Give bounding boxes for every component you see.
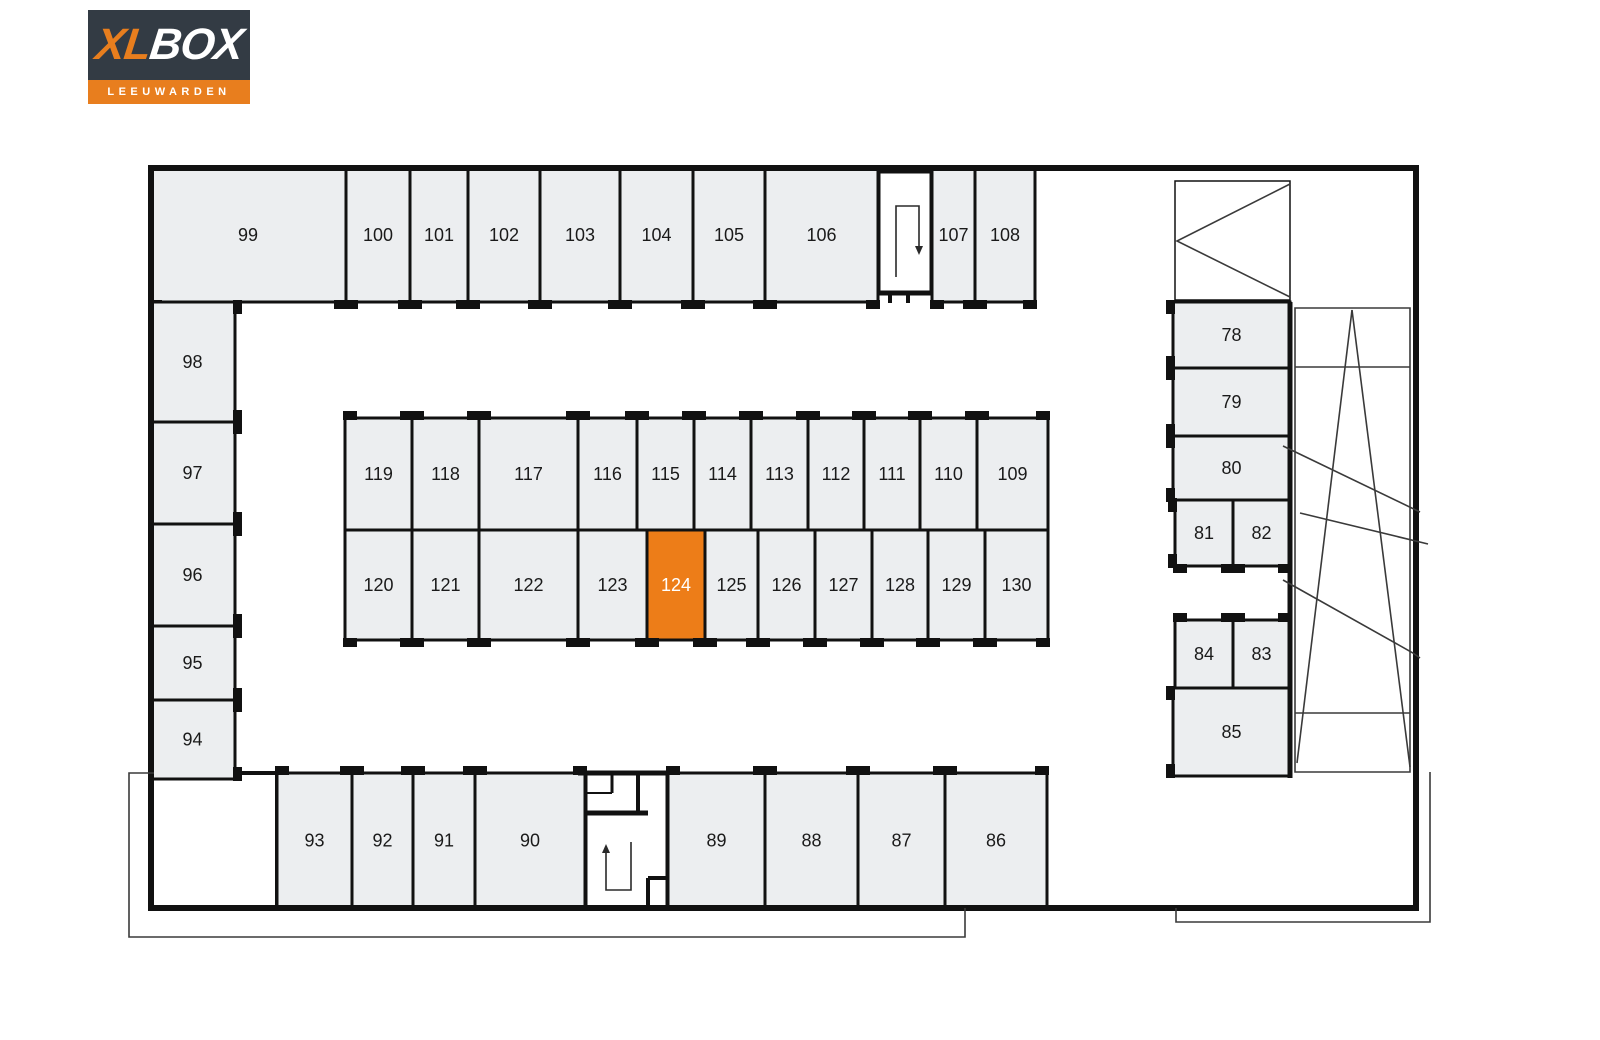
unit-label: 80: [1221, 458, 1241, 478]
unit-127[interactable]: 127: [813, 530, 874, 647]
unit-87[interactable]: 87: [856, 766, 947, 908]
door-tick: [666, 766, 680, 775]
unit-label: 94: [182, 730, 202, 750]
unit-label: 125: [716, 575, 746, 595]
logo-box-text: BOX: [147, 23, 245, 67]
unit-label: 103: [565, 225, 595, 245]
unit-122[interactable]: 122: [477, 530, 580, 647]
door-tick: [233, 767, 242, 781]
unit-105[interactable]: 105: [691, 168, 767, 309]
door-tick: [466, 300, 480, 309]
unit-label: 79: [1221, 392, 1241, 412]
unit-81[interactable]: 81: [1168, 498, 1235, 573]
unit-label: 121: [430, 575, 460, 595]
door-tick: [233, 522, 242, 536]
unit-label: 108: [990, 225, 1020, 245]
unit-label: 102: [489, 225, 519, 245]
door-tick: [973, 300, 987, 309]
unit-80[interactable]: 80: [1166, 434, 1290, 502]
unit-label: 78: [1221, 325, 1241, 345]
unit-130[interactable]: 130: [983, 530, 1050, 647]
unit-label: 111: [878, 464, 905, 484]
door-tick: [1168, 498, 1177, 512]
unit-88[interactable]: 88: [763, 766, 860, 908]
door-tick: [618, 300, 632, 309]
unit-91[interactable]: 91: [411, 766, 477, 908]
unit-115[interactable]: 115: [635, 411, 696, 530]
unit-label: 104: [641, 225, 671, 245]
unit-label: 93: [304, 831, 324, 851]
unit-label: 109: [997, 464, 1027, 484]
unit-label: 118: [431, 464, 460, 484]
door-tick: [343, 411, 357, 420]
unit-label: 130: [1001, 575, 1031, 595]
door-tick: [926, 638, 940, 647]
unit-123[interactable]: 123: [576, 530, 649, 647]
unit-label: 82: [1251, 523, 1271, 543]
door-tick: [1168, 554, 1177, 568]
unit-97[interactable]: 97: [150, 420, 242, 526]
unit-label: 99: [238, 225, 258, 245]
unit-label: 116: [593, 464, 622, 484]
unit-85[interactable]: 85: [1166, 686, 1290, 778]
unit-121[interactable]: 121: [410, 530, 481, 647]
unit-93[interactable]: 93: [275, 766, 354, 908]
unit-label: 88: [801, 831, 821, 851]
door-tick: [635, 411, 649, 420]
unit-label: 100: [363, 225, 393, 245]
unit-126[interactable]: 126: [756, 530, 817, 647]
door-tick: [344, 300, 358, 309]
door-tick: [343, 638, 357, 647]
unit-118[interactable]: 118: [410, 411, 481, 530]
door-tick: [477, 638, 491, 647]
apron-right: [1176, 772, 1430, 922]
door-tick: [691, 300, 705, 309]
unit-label: 128: [885, 575, 915, 595]
ramp-diagonal-a: [1283, 446, 1420, 512]
unit-label: 129: [941, 575, 971, 595]
unit-101[interactable]: 101: [408, 168, 470, 309]
door-tick: [410, 411, 424, 420]
unit-83[interactable]: 83: [1231, 613, 1292, 688]
unit-label: 113: [765, 464, 794, 484]
unit-129[interactable]: 129: [926, 530, 987, 647]
unit-90[interactable]: 90: [473, 766, 587, 908]
door-tick: [1231, 564, 1245, 573]
unit-label: 112: [822, 464, 851, 484]
door-tick: [975, 411, 989, 420]
unit-label: 122: [513, 575, 543, 595]
unit-label: 126: [771, 575, 801, 595]
door-tick: [1036, 411, 1050, 420]
door-tick: [1023, 300, 1037, 309]
unit-label: 84: [1194, 644, 1214, 664]
unit-label: 83: [1251, 644, 1271, 664]
unit-100[interactable]: 100: [344, 168, 412, 309]
ramp-diagonal-b: [1300, 513, 1428, 544]
unit-label: 98: [182, 352, 202, 372]
door-tick: [866, 300, 880, 309]
logo-wordmark: XLBOX: [88, 10, 250, 80]
unit-116[interactable]: 116: [576, 411, 639, 530]
door-tick: [918, 411, 932, 420]
unit-96[interactable]: 96: [150, 522, 242, 628]
unit-102[interactable]: 102: [466, 168, 542, 309]
door-tick: [756, 638, 770, 647]
unit-79[interactable]: 79: [1166, 366, 1290, 438]
door-tick: [233, 698, 242, 712]
unit-label: 97: [182, 463, 202, 483]
door-tick: [1166, 764, 1175, 778]
unit-84[interactable]: 84: [1173, 613, 1235, 688]
door-tick: [411, 766, 425, 775]
unit-label: 81: [1194, 523, 1214, 543]
unit-label: 114: [708, 464, 737, 484]
unit-104[interactable]: 104: [618, 168, 695, 309]
unit-119[interactable]: 119: [343, 411, 414, 530]
door-tick: [576, 411, 590, 420]
ramp-lane: [1295, 308, 1410, 772]
unit-120[interactable]: 120: [343, 530, 414, 647]
unit-label: 87: [891, 831, 911, 851]
door-tick: [477, 411, 491, 420]
door-tick: [1035, 766, 1049, 775]
unit-label: 101: [424, 225, 454, 245]
unit-label: 107: [938, 225, 968, 245]
unit-label: 86: [986, 831, 1006, 851]
door-tick: [930, 300, 944, 309]
unit-label: 90: [520, 831, 540, 851]
door-tick: [473, 766, 487, 775]
unit-label: 120: [363, 575, 393, 595]
unit-label: 89: [706, 831, 726, 851]
unit-117[interactable]: 117: [477, 411, 580, 530]
door-tick: [1166, 300, 1175, 314]
logo-xl-text: XL: [93, 23, 153, 67]
door-tick: [856, 766, 870, 775]
unit-106[interactable]: 106: [763, 168, 880, 309]
door-tick: [233, 624, 242, 638]
door-tick: [538, 300, 552, 309]
ramp-slope-left: [1297, 310, 1352, 763]
ramp-slope-right: [1352, 310, 1410, 767]
door-tick: [763, 766, 777, 775]
door-tick: [1231, 613, 1245, 622]
door-tick: [233, 300, 242, 314]
door-tick: [645, 638, 659, 647]
door-tick: [943, 766, 957, 775]
unit-108[interactable]: 108: [973, 168, 1037, 309]
door-tick: [692, 411, 706, 420]
door-tick: [862, 411, 876, 420]
unit-label: 127: [828, 575, 858, 595]
unit-124[interactable]: 124: [645, 530, 707, 647]
unit-label: 85: [1221, 722, 1241, 742]
floor-plan-drawing: 9910010110210310410510610710898979695941…: [0, 0, 1600, 1040]
door-tick: [1166, 366, 1175, 380]
unit-89[interactable]: 89: [666, 766, 767, 908]
door-tick: [1166, 434, 1175, 448]
door-tick: [806, 411, 820, 420]
unit-label: 119: [364, 464, 393, 484]
door-tick: [703, 638, 717, 647]
door-tick: [813, 638, 827, 647]
unit-114[interactable]: 114: [692, 411, 753, 530]
entry-room: [151, 773, 277, 908]
unit-label: 91: [434, 831, 454, 851]
unit-95[interactable]: 95: [150, 624, 242, 702]
unit-99[interactable]: 99: [148, 168, 348, 309]
unit-82[interactable]: 82: [1231, 500, 1292, 573]
floor-plan-page: XLBOX LEEUWARDEN 99100101102103104105106…: [0, 0, 1600, 1040]
door-tick: [350, 766, 364, 775]
unit-label: 105: [714, 225, 744, 245]
door-tick: [275, 766, 289, 775]
unit-103[interactable]: 103: [538, 168, 622, 309]
logo-city-text: LEEUWARDEN: [88, 80, 250, 104]
unit-92[interactable]: 92: [350, 766, 415, 908]
stairwell-top: [878, 171, 932, 293]
ramp-diagonal-c: [1283, 580, 1420, 658]
door-tick: [408, 300, 422, 309]
unit-125[interactable]: 125: [703, 530, 760, 647]
unit-label: 106: [806, 225, 836, 245]
unit-label: 117: [514, 464, 543, 484]
unit-111[interactable]: 111: [862, 411, 922, 530]
unit-109[interactable]: 109: [975, 411, 1050, 530]
door-tick: [1173, 613, 1187, 622]
unit-label: 124: [661, 575, 691, 595]
unit-78[interactable]: 78: [1166, 300, 1290, 370]
unit-label: 95: [182, 653, 202, 673]
unit-label: 96: [182, 565, 202, 585]
unit-113[interactable]: 113: [749, 411, 810, 530]
door-tick: [983, 638, 997, 647]
xlbox-logo: XLBOX LEEUWARDEN: [88, 10, 250, 104]
ramp-entry-box: [1175, 181, 1290, 300]
door-tick: [1036, 638, 1050, 647]
unit-label: 110: [934, 464, 963, 484]
unit-128[interactable]: 128: [870, 530, 930, 647]
unit-112[interactable]: 112: [806, 411, 866, 530]
unit-label: 115: [651, 464, 680, 484]
door-tick: [1166, 686, 1175, 700]
door-tick: [576, 638, 590, 647]
door-tick: [233, 420, 242, 434]
unit-label: 92: [372, 831, 392, 851]
unit-107[interactable]: 107: [930, 168, 977, 309]
unit-98[interactable]: 98: [150, 300, 242, 424]
door-tick: [870, 638, 884, 647]
unit-94[interactable]: 94: [150, 698, 242, 781]
unit-label: 123: [597, 575, 627, 595]
door-tick: [749, 411, 763, 420]
door-tick: [410, 638, 424, 647]
unit-86[interactable]: 86: [943, 766, 1049, 908]
unit-110[interactable]: 110: [918, 411, 979, 530]
door-tick: [763, 300, 777, 309]
